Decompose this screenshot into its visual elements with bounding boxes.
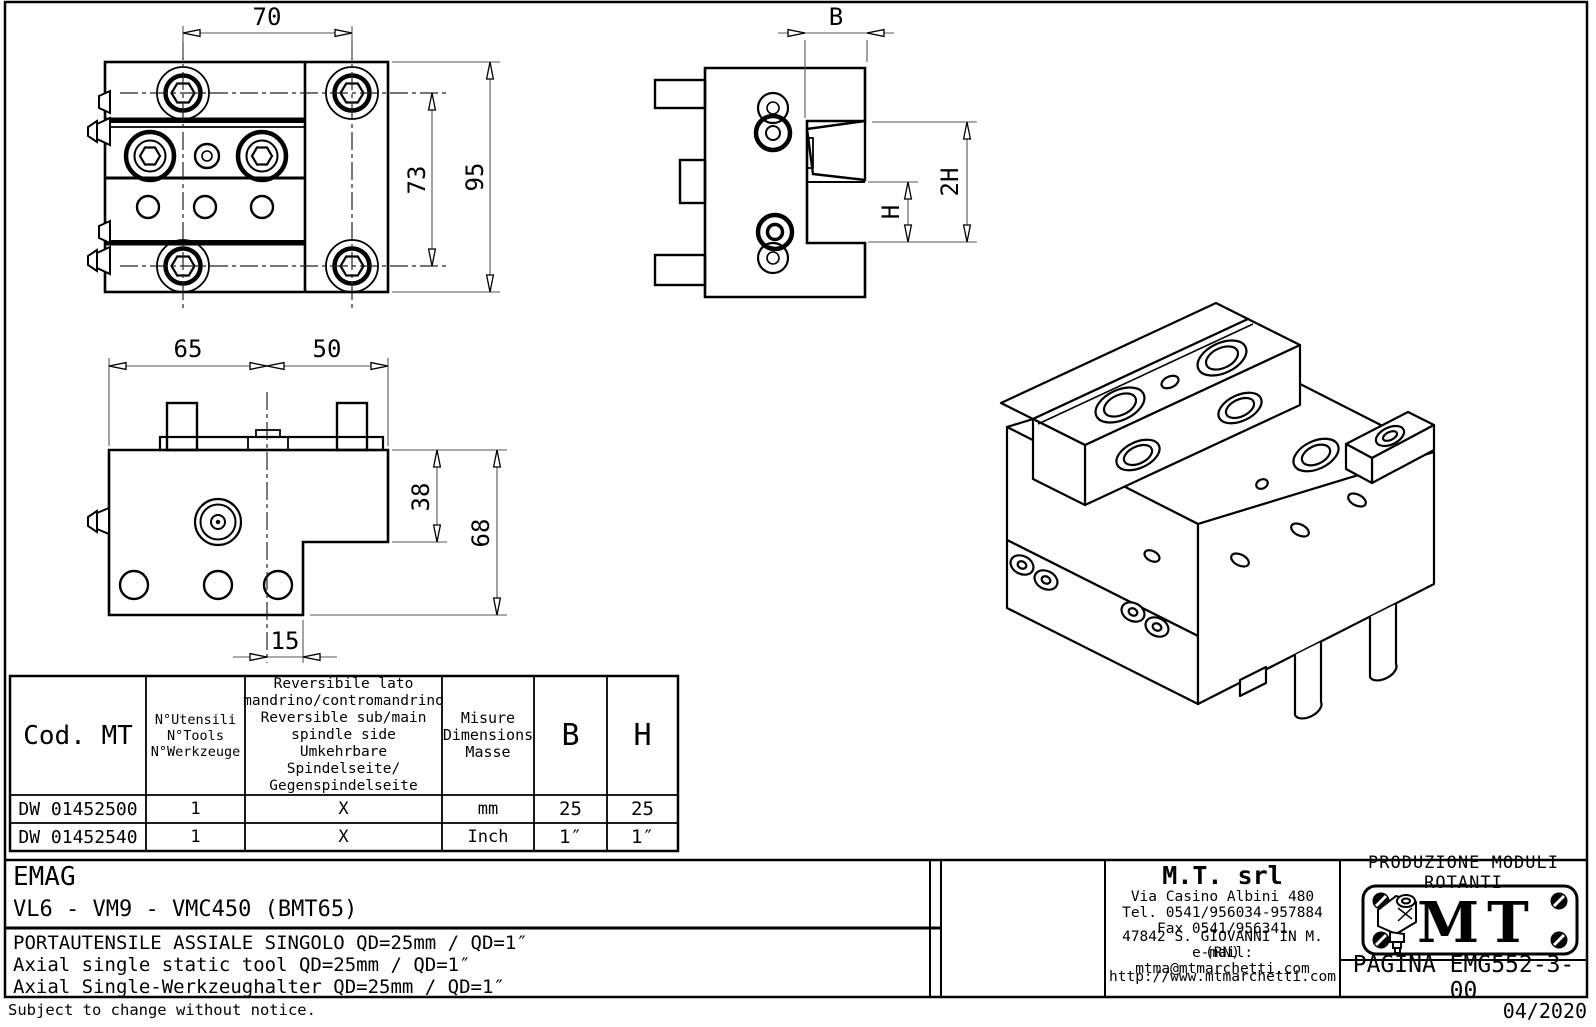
table-header-misure: Misure Dimensions Masse [442,676,534,795]
company-email: e-mail: mtma@mtmarchetti.com [1105,953,1340,969]
dim-label-68: 68 [467,519,495,548]
drawing-sheet: 70 73 95 [0,0,1596,1027]
company-logo: MT [1363,886,1577,956]
company-address: Via Casino Albini 480 [1105,889,1340,905]
company-website: http://www.mtmarchetti.com [1105,969,1340,985]
customer-name: EMAG [13,862,76,892]
clamp-screw-icons [126,132,286,180]
description-german: Axial Single-Werkzeughalter QD=25mm / QD… [13,976,505,998]
dim-label-38: 38 [407,483,435,512]
side-pin-icons [88,91,110,274]
screw-pair-icons [756,93,792,273]
table-row-cell: DW 01452540 [10,823,146,851]
table-row-cell: X [245,823,442,851]
dim-label-70: 70 [253,3,282,31]
dim-label-15: 15 [271,627,300,655]
footer-note: Subject to change without notice. [8,1001,316,1019]
table-row-cell: 1″ [607,823,678,851]
dim-label-H: H [877,205,905,219]
bottom-view [88,358,507,663]
table-row-cell: 1 [146,795,245,823]
table-header-cod-mt: Cod. MT [10,676,146,795]
table-row-cell: 25 [534,795,607,823]
side-pin-icon [88,508,109,534]
front-view [88,26,500,312]
logo-text: MT [1417,890,1537,956]
company-name: M.T. srl [1105,861,1340,889]
description-italian: PORTAUTENSILE ASSIALE SINGOLO QD=25mm / … [13,932,528,954]
table-row-cell: 25 [607,795,678,823]
page-number: PAGINA EMG552-3-00 [1340,960,1587,996]
company-phone: Tel. 0541/956034-957884 [1105,905,1340,921]
footer-date: 04/2020 [1487,999,1587,1023]
table-row-cell: 1 [146,823,245,851]
dim-label-B: B [829,3,843,31]
table-header-B: B [534,676,607,795]
machine-models: VL6 - VM9 - VMC450 (BMT65) [13,897,357,922]
table-row-cell: X [245,795,442,823]
side-view [655,30,977,297]
dim-label-2H: 2H [936,168,964,197]
dim-label-73: 73 [403,166,431,195]
table-header-tools: N°Utensili N°Tools N°Werkzeuge [146,676,245,795]
table-header-H: H [607,676,678,795]
dim-label-65: 65 [174,335,203,363]
table-row-cell: mm [442,795,534,823]
table-row-cell: Inch [442,823,534,851]
table-header-reversible: Reversibile lato mandrino/contromandrino… [245,676,442,795]
table-row-cell: 1″ [534,823,607,851]
isometric-view [1001,303,1434,718]
center-bore-icon [195,499,241,545]
table-row-cell: DW 01452500 [10,795,146,823]
description-english: Axial single static tool QD=25mm / QD=1″ [13,954,471,976]
dim-label-50: 50 [313,335,342,363]
logo-tagline: PRODUZIONE MODULI ROTANTI [1340,862,1587,884]
dim-label-95: 95 [461,163,489,192]
wedge-clamp-icon [807,121,865,182]
